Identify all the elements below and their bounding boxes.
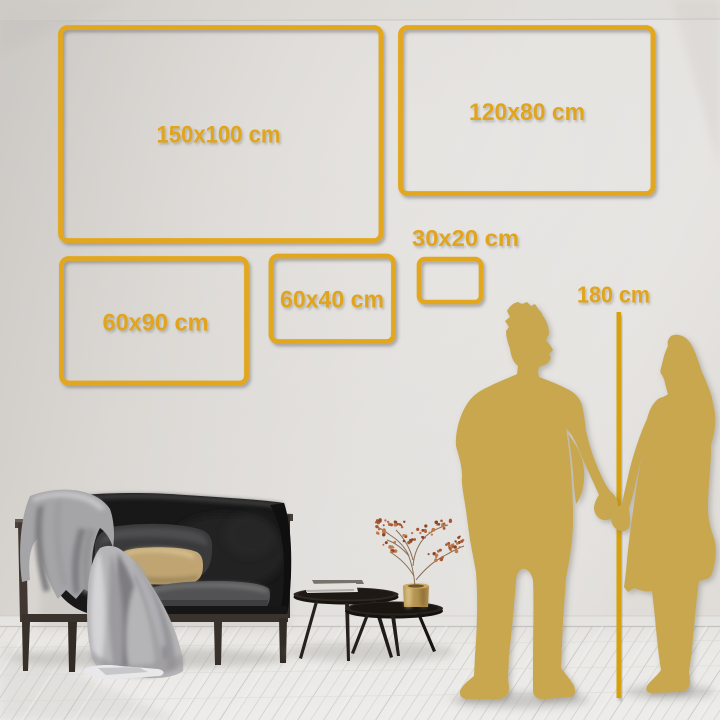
- svg-text:60x40 cm: 60x40 cm: [280, 287, 384, 314]
- svg-text:180 cm: 180 cm: [577, 282, 650, 308]
- svg-text:30x20 cm: 30x20 cm: [412, 225, 519, 251]
- svg-text:150x100 cm: 150x100 cm: [157, 122, 281, 149]
- svg-text:120x80 cm: 120x80 cm: [469, 99, 585, 126]
- svg-text:60x90 cm: 60x90 cm: [103, 310, 209, 337]
